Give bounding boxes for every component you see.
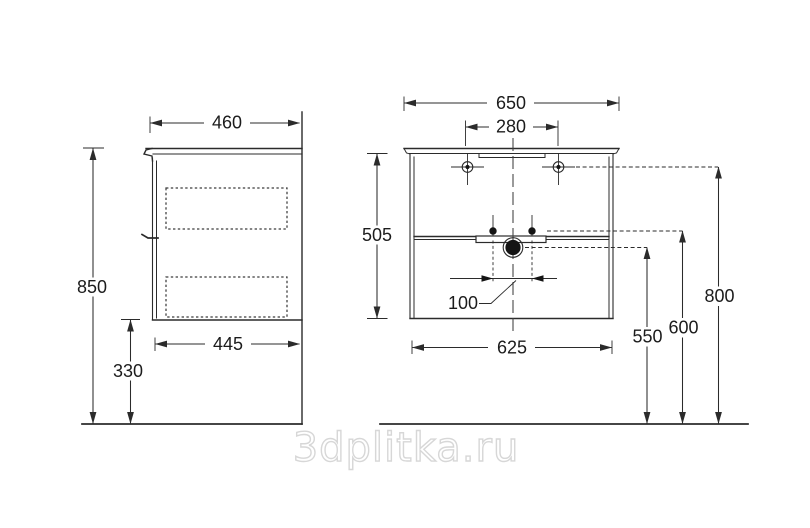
leader-line <box>479 281 516 304</box>
front-view-dimensions: 650 280 505 100 <box>354 93 740 424</box>
dim-label-top-holes-height: 800 <box>704 286 734 306</box>
dim-body-width: 625 <box>412 338 612 358</box>
dim-overall-width: 650 <box>404 93 619 113</box>
dim-label-overall-height: 850 <box>77 277 107 297</box>
side-view-dimensions: 460 850 330 445 <box>70 113 300 424</box>
dim-bracket-span: 100 <box>448 275 557 313</box>
dim-floor-clearance: 330 <box>106 320 150 424</box>
bracket-dot-right-icon <box>528 215 535 237</box>
vanity-dimension-drawing: 460 850 330 445 <box>0 0 810 528</box>
countertop-nose <box>144 149 153 162</box>
dim-label-drain-height: 550 <box>632 327 662 347</box>
dim-bracket-height: 600 <box>664 231 704 424</box>
dim-label-body-height: 505 <box>362 225 392 245</box>
dim-label-bracket-height: 600 <box>668 318 698 338</box>
front-view <box>380 138 748 424</box>
drawer-box-dashed-bottom <box>166 277 287 317</box>
bracket-dot-left-icon <box>489 215 496 237</box>
mounting-hole-marker-left-icon <box>451 154 484 186</box>
drain-hole-icon <box>503 238 523 258</box>
dim-label-top-holes-span: 280 <box>496 117 526 137</box>
dim-top-holes-span: 280 <box>466 117 559 147</box>
dim-label-bracket-span: 100 <box>448 293 478 313</box>
countertop-nose-left <box>404 149 410 154</box>
basin-apron <box>479 154 545 158</box>
dim-overall-height: 850 <box>70 148 115 424</box>
drawer-box-dashed-top <box>166 188 287 229</box>
dim-drain-height: 550 <box>628 248 667 424</box>
technical-drawing-page: 460 850 330 445 <box>0 0 810 528</box>
dim-body-height: 505 <box>354 154 400 319</box>
dim-label-body-depth: 445 <box>213 334 243 354</box>
dim-top-depth: 460 <box>150 113 300 134</box>
watermark-text: 3dplitka.ru <box>293 425 520 471</box>
dim-body-depth: 445 <box>155 334 300 354</box>
dim-label-floor-clearance: 330 <box>113 361 143 381</box>
dim-label-overall-width: 650 <box>496 93 526 113</box>
dim-label-body-width: 625 <box>497 338 527 358</box>
dim-label-top-depth: 460 <box>212 113 242 133</box>
countertop-nose-right <box>614 149 620 154</box>
drawer-gap-handle <box>142 235 158 239</box>
mounting-hole-marker-right-icon <box>542 154 575 186</box>
dim-top-holes-height: 800 <box>700 167 740 424</box>
